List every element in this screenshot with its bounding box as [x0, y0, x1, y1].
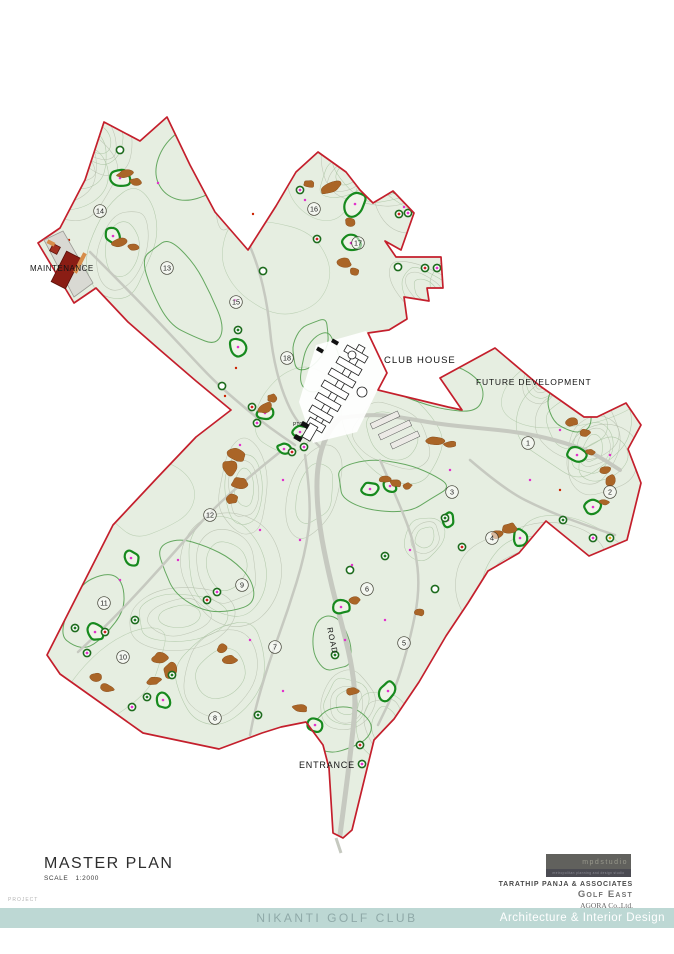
contour-line: [472, 142, 559, 214]
tee-marker-dot: [397, 266, 400, 269]
tee-marker-dot: [461, 546, 464, 549]
fairway-outline: [211, 146, 277, 218]
label-future-development: FUTURE DEVELOPMENT: [476, 377, 591, 387]
red-dot: [224, 395, 226, 397]
sprinkler-dot: [157, 182, 159, 184]
firm-architect: TARATHIP PANJA & ASSOCIATES: [499, 881, 633, 888]
tee-marker-dot: [299, 189, 302, 192]
hole-number: 7: [273, 643, 277, 652]
pin-marker: [112, 235, 115, 238]
hole-number: 12: [206, 511, 214, 520]
tee-marker-dot: [171, 674, 174, 677]
sprinkler-dot: [304, 199, 306, 201]
contour-line: [430, 253, 531, 336]
hole-number: 3: [450, 488, 454, 497]
contour-line: [502, 566, 563, 619]
entrance-road-stub: [336, 838, 341, 853]
label-club-house: CLUB HOUSE: [384, 355, 456, 366]
sheet-title: MASTER PLAN: [44, 855, 173, 873]
hole-number: 18: [283, 354, 291, 363]
contour-line: [574, 597, 606, 652]
clubhouse-court: [357, 387, 367, 397]
bunker: [304, 181, 314, 188]
hole-number: 1: [526, 439, 530, 448]
hole-number: 2: [608, 488, 612, 497]
sprinkler-dot: [559, 429, 561, 431]
pin-marker: [340, 606, 343, 609]
pin-marker: [576, 454, 579, 457]
sprinkler-dot: [449, 469, 451, 471]
tee-marker-dot: [256, 422, 259, 425]
project-label: PROJECT: [8, 897, 38, 903]
contour-line: [405, 134, 454, 189]
contour-line: [567, 271, 580, 295]
clubhouse-court: [348, 351, 356, 359]
hole-number: 13: [163, 264, 171, 273]
tee-marker-dot: [398, 213, 401, 216]
contour-line: [543, 96, 595, 135]
tee-marker-dot: [237, 329, 240, 332]
sprinkler-dot: [177, 559, 179, 561]
bunker: [379, 476, 391, 482]
hole-number: 11: [100, 599, 107, 608]
studio-logo: mpdstudio metropolitan planning and desi…: [546, 854, 631, 877]
tee-marker-dot: [562, 519, 565, 522]
contour-line: [24, 148, 95, 203]
tee-marker-dot: [384, 555, 387, 558]
contour-line: [220, 188, 239, 220]
footer-bar: NIKANTI GOLF CLUB Architecture & Interio…: [0, 908, 674, 928]
tee-marker-dot: [436, 267, 439, 270]
tee-marker-dot: [434, 588, 437, 591]
pin-marker: [387, 690, 390, 693]
contour-line: [583, 613, 598, 639]
fairway-outline: [391, 177, 446, 198]
sprinkler-dot: [259, 529, 261, 531]
pin-marker: [130, 557, 133, 560]
sprinkler-dot: [403, 206, 405, 208]
contour-line: [579, 604, 601, 644]
contour-line: [483, 781, 546, 865]
contour-line: [161, 412, 192, 430]
sprinkler-dot: [282, 690, 284, 692]
sprinkler-dot: [299, 539, 301, 541]
pin-marker: [94, 631, 97, 634]
red-dot: [235, 367, 237, 369]
tee-marker-dot: [359, 744, 362, 747]
tee-marker-dot: [316, 238, 319, 241]
sprinkler-dot: [529, 479, 531, 481]
sprinkler-dot: [239, 444, 241, 446]
fairway-outline: [523, 276, 573, 352]
contour-line: [443, 263, 521, 327]
pin-marker: [162, 699, 165, 702]
hole-number: 10: [119, 653, 127, 662]
tee-marker-dot: [206, 599, 209, 602]
tee-marker-dot: [349, 569, 352, 572]
contour-line: [559, 107, 579, 122]
tee-marker-dot: [592, 537, 595, 540]
red-dot: [559, 489, 561, 491]
contour-line: [52, 134, 90, 169]
tee-marker-dot: [291, 451, 294, 454]
firm-client: Golf East: [499, 889, 633, 900]
contour-line: [436, 740, 519, 856]
contour-line: [553, 105, 584, 127]
pin-marker: [299, 431, 302, 434]
label-ptg: PTG: [293, 422, 303, 428]
label-maintenance: MAINTENANCE: [30, 264, 94, 273]
hole-number: 9: [240, 581, 244, 590]
tee-marker-dot: [407, 212, 410, 215]
contour-line: [566, 605, 638, 733]
tee-marker-dot: [251, 406, 254, 409]
pin-marker: [369, 488, 372, 491]
contour-line: [394, 117, 466, 201]
contour-line: [514, 657, 577, 710]
tee-marker-dot: [609, 537, 612, 540]
tee-marker-dot: [216, 591, 219, 594]
pin-marker: [283, 448, 286, 451]
contour-line: [565, 265, 584, 300]
bunker: [345, 218, 355, 227]
tee-marker-dot: [146, 696, 149, 699]
contour-line: [571, 593, 608, 660]
contour-line: [509, 603, 638, 730]
sprinkler-dot: [409, 549, 411, 551]
pin-marker: [389, 485, 392, 488]
tee-marker-dot: [131, 706, 134, 709]
studio-name: mpdstudio: [546, 854, 631, 869]
tee-marker-dot: [74, 627, 77, 630]
tee-marker-dot: [424, 267, 427, 270]
bunker: [414, 609, 424, 616]
tee-marker-dot: [221, 385, 224, 388]
sprinkler-dot: [282, 479, 284, 481]
firm-block: TARATHIP PANJA & ASSOCIATES Golf East AG…: [499, 881, 633, 910]
contour-line: [489, 151, 542, 197]
hole-number: 8: [213, 714, 217, 723]
contour-line: [165, 416, 187, 428]
hole-number: 14: [96, 207, 104, 216]
contour-line: [349, 129, 412, 195]
contour-line: [38, 159, 81, 195]
fairway-outline: [461, 193, 548, 236]
sheet-scale: SCALE 1:2000: [44, 875, 173, 882]
contour-line: [548, 99, 591, 131]
tee-marker-dot: [262, 270, 265, 273]
tee-marker-dot: [361, 763, 364, 766]
pin-marker: [592, 506, 595, 509]
plan-sheet: MAINTENANCECLUB HOUSEFUTURE DEVELOPMENTE…: [0, 0, 674, 954]
sprinkler-dot: [609, 454, 611, 456]
pin-marker: [519, 537, 522, 540]
hole-number: 16: [310, 205, 318, 214]
contour-line: [458, 274, 510, 316]
pin-marker: [354, 203, 357, 206]
pin-marker: [237, 346, 240, 349]
hole-number: 5: [402, 639, 406, 648]
contour-line: [359, 143, 399, 184]
contour-line: [514, 703, 565, 733]
tee-marker-dot: [119, 149, 122, 152]
contour-line: [501, 696, 577, 740]
master-plan-map: MAINTENANCECLUB HOUSEFUTURE DEVELOPMENTE…: [0, 0, 674, 954]
hole-number: 17: [354, 239, 362, 248]
hole-number: 15: [232, 298, 240, 307]
tee-marker-dot: [134, 619, 137, 622]
footer-right-text: Architecture & Interior Design: [500, 912, 665, 924]
tee-marker-dot: [303, 446, 306, 449]
contour-line: [48, 707, 70, 735]
hole-number: 4: [490, 534, 494, 543]
contour-line: [492, 799, 536, 852]
red-dot: [252, 213, 254, 215]
sprinkler-dot: [249, 639, 251, 641]
pin-marker: [314, 724, 317, 727]
label-entrance: ENTRANCE: [299, 760, 355, 770]
contour-line: [581, 112, 629, 148]
contour-line: [528, 663, 564, 700]
studio-tagline: metropolitan planning and design studio: [546, 869, 631, 877]
tee-marker-dot: [104, 631, 107, 634]
tee-marker-dot: [86, 652, 89, 655]
contour-line: [43, 702, 75, 744]
hole-number: 6: [365, 585, 369, 594]
title-block: MASTER PLAN SCALE 1:2000: [44, 855, 173, 882]
contour-line: [573, 105, 643, 157]
sprinkler-dot: [351, 564, 353, 566]
sprinkler-dot: [119, 579, 121, 581]
sprinkler-dot: [384, 619, 386, 621]
sprinkler-dot: [344, 639, 346, 641]
bunker: [350, 268, 358, 275]
tee-marker-dot: [444, 517, 447, 520]
tee-marker-dot: [257, 714, 260, 717]
